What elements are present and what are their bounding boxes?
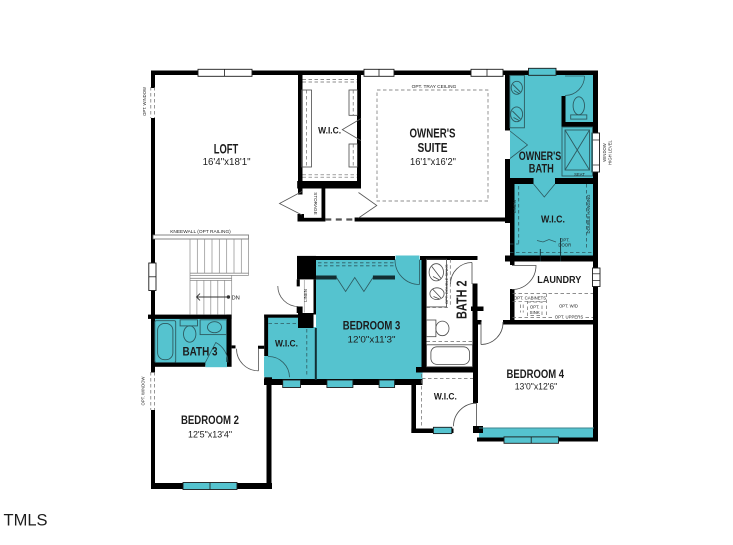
svg-text:LAUNDRY: LAUNDRY <box>537 274 581 286</box>
svg-text:DOUBLE HANGING: DOUBLE HANGING <box>586 194 591 234</box>
svg-text:DOOR: DOOR <box>558 243 571 248</box>
svg-text:OPT. DOUBLE SINKS: OPT. DOUBLE SINKS <box>444 264 449 304</box>
svg-text:13'0"x12'6": 13'0"x12'6" <box>515 382 558 393</box>
svg-text:12'0"x11'3": 12'0"x11'3" <box>348 335 396 346</box>
svg-text:W.I.C.: W.I.C. <box>541 214 565 226</box>
svg-text:OPT. W/D: OPT. W/D <box>559 303 578 308</box>
svg-text:KNEEWALL (OPT RAILING): KNEEWALL (OPT RAILING) <box>170 229 231 235</box>
svg-text:OPT. TRAY CEILING: OPT. TRAY CEILING <box>412 84 457 90</box>
svg-text:LINEN: LINEN <box>512 200 517 213</box>
svg-text:W.I.C.: W.I.C. <box>275 339 298 350</box>
svg-text:BEDROOM 2: BEDROOM 2 <box>181 413 239 427</box>
svg-text:OWNER'S: OWNER'S <box>410 126 456 140</box>
svg-text:BEDROOM 3: BEDROOM 3 <box>343 318 401 332</box>
svg-text:16'1"x16'2": 16'1"x16'2" <box>410 157 456 168</box>
svg-text:BEDROOM 4: BEDROOM 4 <box>507 367 565 381</box>
svg-text:TMLS: TMLS <box>4 512 48 530</box>
svg-text:BATH 3: BATH 3 <box>183 347 218 359</box>
svg-text:DN: DN <box>232 296 240 302</box>
svg-text:BATH: BATH <box>529 164 554 176</box>
svg-text:OPT. UPPERS: OPT. UPPERS <box>555 314 584 319</box>
svg-text:SUITE: SUITE <box>418 141 448 155</box>
svg-text:WINDOW: WINDOW <box>602 143 607 161</box>
svg-text:OPT. WINDOW: OPT. WINDOW <box>141 377 146 406</box>
svg-text:OPT. WINDOW: OPT. WINDOW <box>142 87 147 116</box>
svg-text:HIGH LEVEL: HIGH LEVEL <box>608 139 613 164</box>
svg-text:SINK: SINK <box>530 310 540 315</box>
svg-text:OWNER'S: OWNER'S <box>519 151 562 163</box>
svg-text:W.I.C.: W.I.C. <box>434 392 457 403</box>
svg-text:16'4"x18'1": 16'4"x18'1" <box>203 157 251 168</box>
svg-text:SEAT: SEAT <box>574 172 585 177</box>
svg-text:STORAGE: STORAGE <box>313 192 318 214</box>
svg-text:OPT. CABINETS: OPT. CABINETS <box>514 296 546 301</box>
svg-text:LINEN: LINEN <box>303 289 308 302</box>
svg-text:12'5"x13'4": 12'5"x13'4" <box>188 430 232 441</box>
svg-text:W.I.C.: W.I.C. <box>318 126 341 137</box>
svg-text:OPT.: OPT. <box>530 305 540 310</box>
svg-text:LOFT: LOFT <box>214 142 239 157</box>
svg-text:BATH 2: BATH 2 <box>455 280 471 319</box>
